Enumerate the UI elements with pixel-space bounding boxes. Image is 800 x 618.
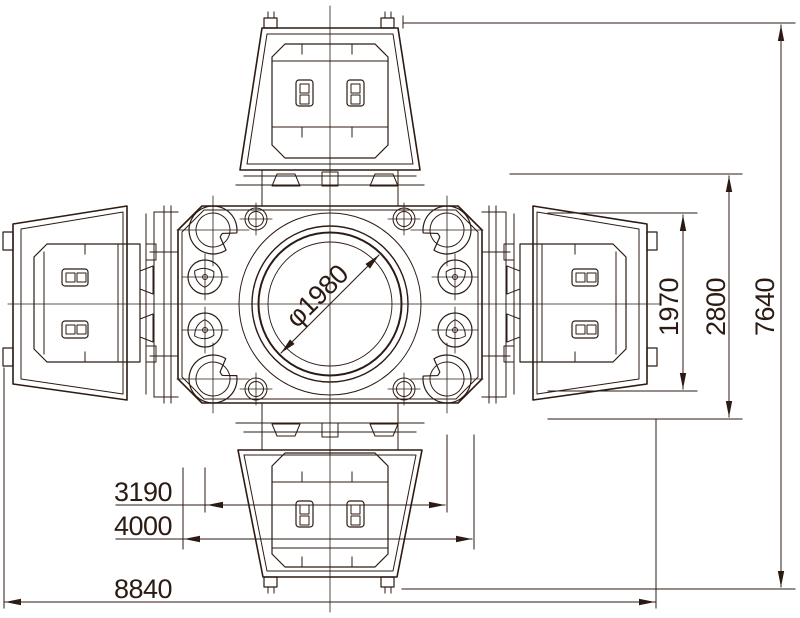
pod-right: [520, 206, 657, 400]
centerlines: [8, 6, 660, 612]
dimension-7640: 7640: [402, 16, 795, 589]
dim-1970-label: 1970: [654, 278, 684, 336]
technical-drawing-page: φ1980: [0, 0, 800, 618]
machine-plan-drawing: φ1980: [0, 0, 800, 618]
dimension-1970: 1970: [548, 213, 697, 391]
dim-4000-label: 4000: [114, 511, 172, 541]
bolt-hole: [388, 373, 420, 405]
dim-8840-label: 8840: [114, 574, 172, 604]
bolt-hole: [240, 373, 272, 405]
dim-7640-label: 7640: [750, 278, 780, 336]
cam-roller-right-upper: [432, 254, 478, 300]
dim-3190-label: 3190: [114, 477, 172, 507]
dim-bore-diameter-label: φ1980: [280, 259, 354, 333]
dim-2800-label: 2800: [701, 278, 731, 336]
pod-left: [3, 206, 140, 400]
cam-roller-left-lower: [182, 307, 228, 353]
dimension-3190: 3190: [114, 435, 447, 512]
cam-roller-left-upper: [182, 254, 228, 300]
cam-roller-right-lower: [432, 307, 478, 353]
